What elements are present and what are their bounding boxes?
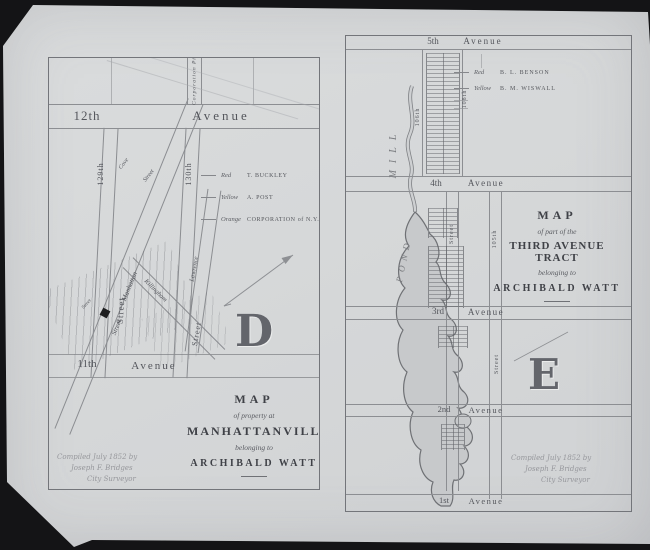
- label-108th-street: 108th: [462, 69, 468, 129]
- map-panel-third-avenue-tract: 5th Avenue 106th 108th 4th Avenue Street…: [345, 35, 632, 512]
- lot-block-3rd-2nd: [438, 326, 468, 348]
- plate-letter-d: D: [235, 310, 273, 354]
- title-owner: ARCHIBALD WATT: [492, 283, 622, 294]
- title-block-manhattanville: MAP of property at MANHATTANVILLE belong…: [187, 392, 320, 477]
- legend-swatch-line: [454, 72, 469, 73]
- title-subline: of part of the: [492, 227, 622, 236]
- title-owner: ARCHIBALD WATT: [187, 458, 320, 469]
- label-11th-avenue: Avenue: [111, 361, 197, 372]
- title-map-word: MAP: [492, 208, 622, 223]
- label-corporation-pier: Corporation Pier: [192, 57, 198, 108]
- legend-spare-line: [454, 100, 468, 101]
- label-street-west: Street: [449, 204, 455, 264]
- legend-color-name: Yellow: [221, 194, 247, 201]
- label-street-east: Street: [494, 334, 500, 394]
- block-tick-line: [481, 54, 482, 68]
- title-rule: [544, 301, 570, 302]
- credit-line: Compiled July 1852 by: [57, 452, 137, 463]
- label-130th-street: 130th: [185, 144, 193, 204]
- label-mill: MILL: [389, 113, 399, 193]
- north-arrow-icon: [219, 248, 304, 313]
- legend-entry-yellow: Yellow A. POST: [201, 194, 273, 201]
- credit-line: Compiled July 1852 by: [511, 453, 591, 464]
- legend-color-name: Yellow: [474, 85, 500, 92]
- plate-letter-e: E: [528, 354, 560, 396]
- label-1st: 1st: [430, 496, 458, 505]
- credit-line: City Surveyor: [87, 474, 137, 485]
- lot-block-2nd-1st: [441, 424, 465, 450]
- label-4th-avenue: Avenue: [456, 179, 516, 188]
- title-block-third-avenue-tract: MAP of part of the THIRD AVENUE TRACT be…: [492, 208, 622, 302]
- title-rule: [241, 476, 267, 477]
- photographed-map-sheet: 12th Avenue Corporation Pier 129th 130th…: [0, 0, 650, 550]
- legend-owner: B. L. BENSON: [500, 70, 550, 76]
- road-5th-avenue-line: [346, 49, 631, 50]
- cross-street-east-line: [489, 191, 490, 499]
- legend-color-name: Red: [221, 172, 247, 179]
- label-11th: 11th: [65, 359, 109, 370]
- pier-street-east-line: [201, 58, 202, 104]
- credit-line: Joseph F. Bridges: [525, 464, 591, 475]
- map-panel-manhattanville: 12th Avenue Corporation Pier 129th 130th…: [48, 57, 320, 490]
- street-106th-line: [422, 49, 423, 176]
- label-12th-avenue: Avenue: [175, 109, 267, 122]
- title-subline: of property at: [187, 411, 320, 420]
- title-map-word: MAP: [187, 392, 320, 407]
- legend-entry-red: Red B. L. BENSON: [454, 69, 550, 76]
- legend-swatch-line: [201, 197, 216, 198]
- legend-entry-red: Red T. BUCKLEY: [201, 172, 288, 179]
- legend-color-name: Orange: [221, 216, 247, 223]
- legend-spare-line-2: [454, 108, 468, 109]
- lot-block-4th-3rd: [428, 246, 464, 308]
- title-subline-2: belonging to: [492, 268, 622, 277]
- title-subline-2: belonging to: [187, 443, 320, 452]
- label-1st-avenue: Avenue: [458, 497, 514, 506]
- legend-owner: T. BUCKLEY: [247, 173, 288, 179]
- credit-line: Joseph F. Bridges: [71, 463, 137, 474]
- legend-swatch-line: [201, 175, 216, 176]
- legend-owner: CORPORATION of N.Y.: [247, 217, 319, 223]
- surveyor-credit-left: Compiled July 1852 by Joseph F. Bridges …: [57, 452, 137, 485]
- label-106th-street: 106th: [415, 87, 421, 147]
- label-4th: 4th: [422, 179, 450, 188]
- waterfront-block-line: [111, 58, 112, 104]
- label-2nd-avenue: Avenue: [458, 406, 514, 415]
- label-3rd: 3rd: [424, 307, 452, 316]
- label-129th-street: 129th: [97, 144, 105, 204]
- label-3rd-avenue: Avenue: [456, 308, 516, 317]
- label-5th-avenue: Avenue: [451, 37, 515, 46]
- waterfront-block-line-2: [253, 58, 254, 104]
- surveyor-credit-right: Compiled July 1852 by Joseph F. Bridges …: [511, 453, 591, 486]
- credit-line: City Surveyor: [541, 475, 591, 486]
- label-2nd: 2nd: [430, 405, 458, 414]
- legend-swatch-line: [454, 88, 469, 89]
- title-name: THIRD AVENUE TRACT: [492, 240, 622, 264]
- legend-owner: A. POST: [247, 195, 273, 201]
- title-name: MANHATTANVILLE: [187, 424, 320, 439]
- label-5th: 5th: [418, 37, 448, 46]
- legend-owner: B. M. WISWALL: [500, 86, 556, 92]
- legend-entry-yellow: Yellow B. M. WISWALL: [454, 85, 556, 92]
- label-12th: 12th: [61, 109, 113, 122]
- legend-color-name: Red: [474, 69, 500, 76]
- legend-entry-orange: Orange CORPORATION of N.Y.: [201, 216, 319, 223]
- legend-swatch-line: [201, 219, 216, 220]
